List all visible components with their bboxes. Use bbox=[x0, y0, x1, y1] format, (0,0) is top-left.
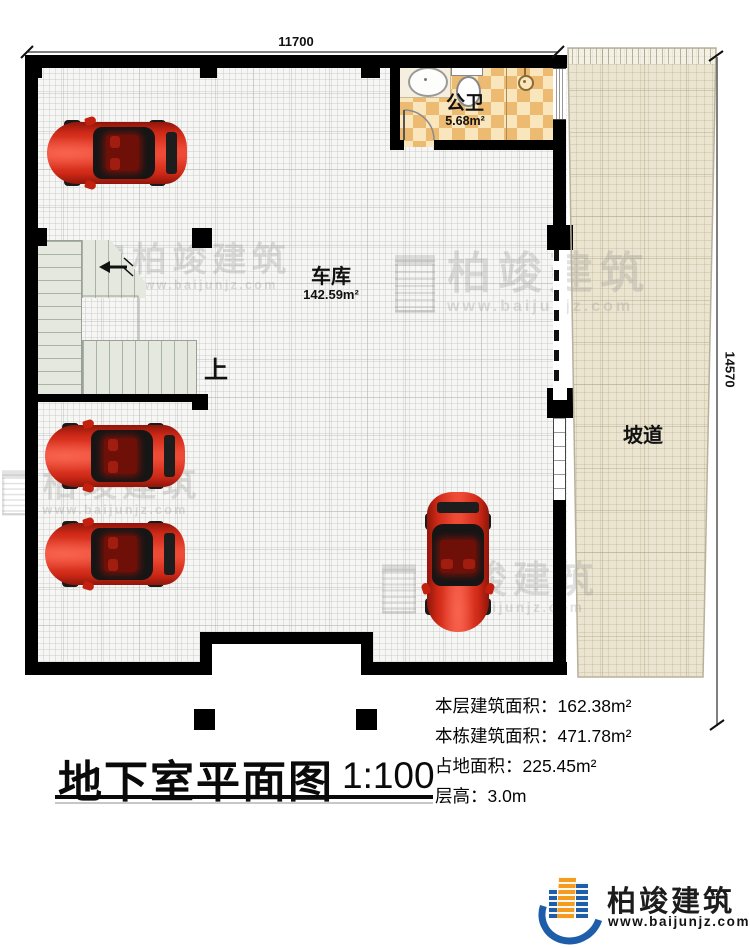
stair-side-wall bbox=[25, 394, 208, 402]
porch-wall-right bbox=[361, 632, 373, 675]
pilaster-left bbox=[38, 228, 47, 246]
bathroom-label: 公卫 5.68m² bbox=[415, 93, 515, 128]
garage-label: 车库 142.59m² bbox=[281, 266, 381, 303]
entry-recess bbox=[212, 644, 361, 675]
column-marker bbox=[356, 709, 377, 730]
company-website: www.baijunjz.com bbox=[608, 914, 750, 929]
car bbox=[45, 522, 185, 586]
drawing-title: 地下室平面图 bbox=[58, 746, 334, 810]
area-info-block: 本层建筑面积：162.38m² 本栋建筑面积：471.78m² 占地面积：225… bbox=[435, 691, 631, 811]
ramp-label: 坡道 bbox=[593, 425, 693, 447]
logo-building-icon bbox=[549, 888, 557, 918]
wall-top bbox=[25, 55, 567, 68]
bathroom-area: 5.68m² bbox=[415, 114, 515, 128]
company-logo: 柏竣建筑 www.baijunjz.com bbox=[535, 872, 747, 938]
porch-wall-top bbox=[200, 632, 373, 644]
bathroom-wall-bottom-a bbox=[390, 140, 404, 150]
wall-bottom-left bbox=[25, 662, 211, 675]
stair-flight-bottom bbox=[82, 340, 197, 396]
column-marker bbox=[194, 709, 215, 730]
info-line-footprint-area: 占地面积：225.45m² bbox=[435, 751, 631, 781]
porch-wall-left bbox=[200, 632, 212, 675]
bathroom-name: 公卫 bbox=[415, 93, 515, 114]
garage-area: 142.59m² bbox=[281, 288, 381, 303]
logo-building-icon bbox=[557, 876, 576, 919]
drawing-scale: 1:100 bbox=[342, 755, 435, 797]
car bbox=[47, 121, 187, 185]
dimension-right: 14570 bbox=[723, 340, 738, 400]
ramp-hatch-band bbox=[560, 48, 720, 64]
bathroom-wall-left bbox=[390, 55, 400, 150]
info-line-storey-height: 层高：3.0m bbox=[435, 781, 631, 811]
sink-drain bbox=[424, 78, 427, 81]
title-underline-shadow bbox=[55, 802, 433, 804]
garage-door-opening-dashed bbox=[554, 250, 559, 388]
bathroom-wall-bottom-b bbox=[434, 140, 553, 150]
shower-head-center bbox=[523, 80, 526, 83]
garage-name: 车库 bbox=[281, 266, 381, 288]
column-free bbox=[192, 228, 212, 248]
stair-wall-end-column bbox=[192, 394, 208, 410]
car bbox=[426, 492, 490, 632]
column-right-a bbox=[547, 225, 573, 250]
title-underline bbox=[55, 795, 433, 799]
wall-right-lower bbox=[553, 500, 566, 675]
info-line-building-area: 本栋建筑面积：471.78m² bbox=[435, 721, 631, 751]
stair-direction-label: 上 bbox=[204, 350, 228, 385]
dim-tick bbox=[710, 720, 724, 730]
ramp-area bbox=[560, 48, 720, 678]
wall-bottom-right bbox=[362, 662, 567, 675]
pilaster-top-a bbox=[28, 68, 42, 78]
floor-plan-sheet: 柏竣建筑 www.baijunjz.com 柏竣建筑 www.baijunjz.… bbox=[0, 0, 750, 948]
pilaster-top-b bbox=[200, 68, 217, 78]
stair-flight-left bbox=[32, 240, 82, 396]
wall-left bbox=[25, 55, 38, 675]
pilaster-top-c bbox=[361, 68, 380, 78]
ramp-name: 坡道 bbox=[593, 425, 693, 447]
garage-window bbox=[553, 418, 566, 500]
bathroom-window bbox=[553, 68, 566, 120]
dimension-top: 11700 bbox=[266, 34, 326, 49]
car bbox=[45, 424, 185, 488]
shower-head bbox=[518, 75, 534, 91]
info-line-floor-area: 本层建筑面积：162.38m² bbox=[435, 691, 631, 721]
logo-building-icon bbox=[576, 882, 588, 918]
wall-right-upper bbox=[553, 120, 566, 225]
